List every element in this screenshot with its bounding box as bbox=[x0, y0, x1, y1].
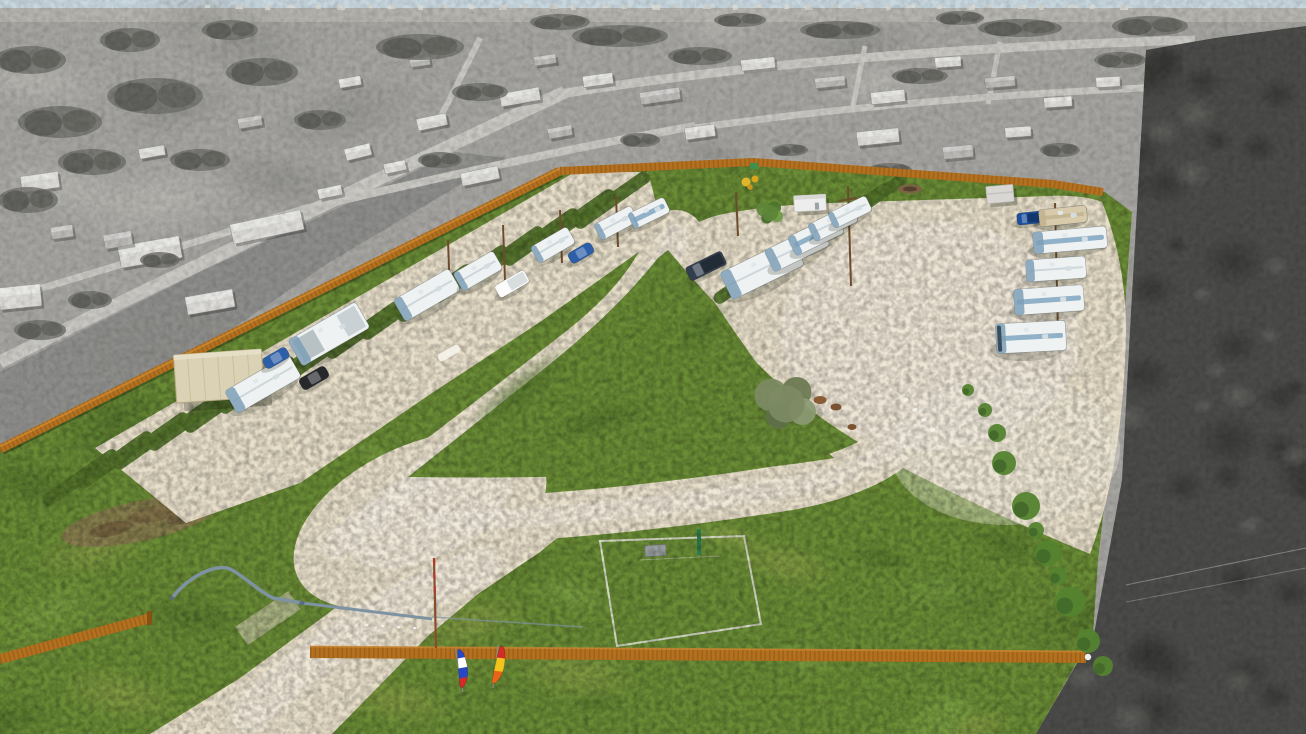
bush bbox=[1049, 567, 1067, 585]
gate-post bbox=[147, 611, 152, 625]
rv-trailer-part bbox=[1041, 292, 1046, 296]
bush-part bbox=[1050, 573, 1060, 583]
bush bbox=[978, 403, 992, 417]
rv-trailer-part bbox=[1065, 266, 1071, 271]
bush-part bbox=[963, 388, 970, 395]
animal bbox=[831, 404, 842, 411]
entrance-gate-part bbox=[299, 600, 304, 605]
entrance-gate-part bbox=[397, 626, 400, 628]
bush bbox=[1028, 522, 1044, 538]
fire-pit-part bbox=[903, 187, 917, 192]
tree-part bbox=[762, 205, 778, 221]
pickup-truck-part bbox=[1021, 214, 1027, 223]
fire-pit bbox=[898, 185, 922, 194]
bush bbox=[1093, 656, 1113, 676]
office-cabin bbox=[794, 194, 830, 216]
bush-part bbox=[1077, 637, 1090, 650]
bush-part bbox=[1036, 549, 1050, 563]
entrance-gate-part bbox=[365, 624, 368, 626]
rv-trailer-part bbox=[1082, 236, 1088, 241]
bush-part bbox=[1029, 528, 1038, 537]
bush-part bbox=[989, 430, 999, 440]
office-cabin-part bbox=[815, 203, 819, 210]
animal bbox=[848, 424, 857, 430]
aerial-rv-park-photo bbox=[0, 0, 1306, 734]
rv-trailer-part bbox=[1062, 233, 1067, 237]
photo-canvas bbox=[0, 0, 1306, 734]
rv-trailer-part bbox=[1013, 289, 1025, 316]
rv-trailer-part bbox=[1058, 211, 1063, 216]
entrance-gate-part bbox=[170, 596, 174, 600]
park-sign bbox=[750, 163, 758, 169]
bush-part bbox=[993, 459, 1006, 472]
rv-trailer-part bbox=[1032, 231, 1044, 254]
bush bbox=[962, 384, 974, 396]
bush-part bbox=[1013, 502, 1028, 517]
bush bbox=[1035, 540, 1061, 566]
bush bbox=[1076, 629, 1100, 653]
rv-trailer-part bbox=[1060, 297, 1066, 302]
bush-part bbox=[1094, 663, 1105, 674]
playground-toy-part bbox=[747, 184, 753, 190]
animal bbox=[814, 396, 827, 404]
fence-end-post bbox=[1085, 654, 1091, 660]
rv-trailer-part bbox=[1042, 334, 1048, 339]
entrance-gate-part bbox=[381, 625, 384, 627]
rv-trailer-part bbox=[1070, 213, 1076, 218]
rv-trailer-part bbox=[1024, 328, 1029, 332]
bush-part bbox=[1057, 598, 1074, 615]
rv-trailer-part bbox=[1025, 260, 1035, 283]
playground-toy-part bbox=[752, 176, 759, 183]
bush bbox=[1055, 587, 1085, 617]
bush bbox=[988, 424, 1006, 442]
storage-shed bbox=[986, 184, 1018, 208]
bush bbox=[1012, 492, 1040, 520]
tree-part bbox=[767, 385, 804, 422]
bush-part bbox=[979, 408, 987, 416]
rv-trailer-part bbox=[1050, 262, 1055, 266]
bush bbox=[992, 451, 1016, 475]
entrance-gate-part bbox=[413, 627, 416, 629]
